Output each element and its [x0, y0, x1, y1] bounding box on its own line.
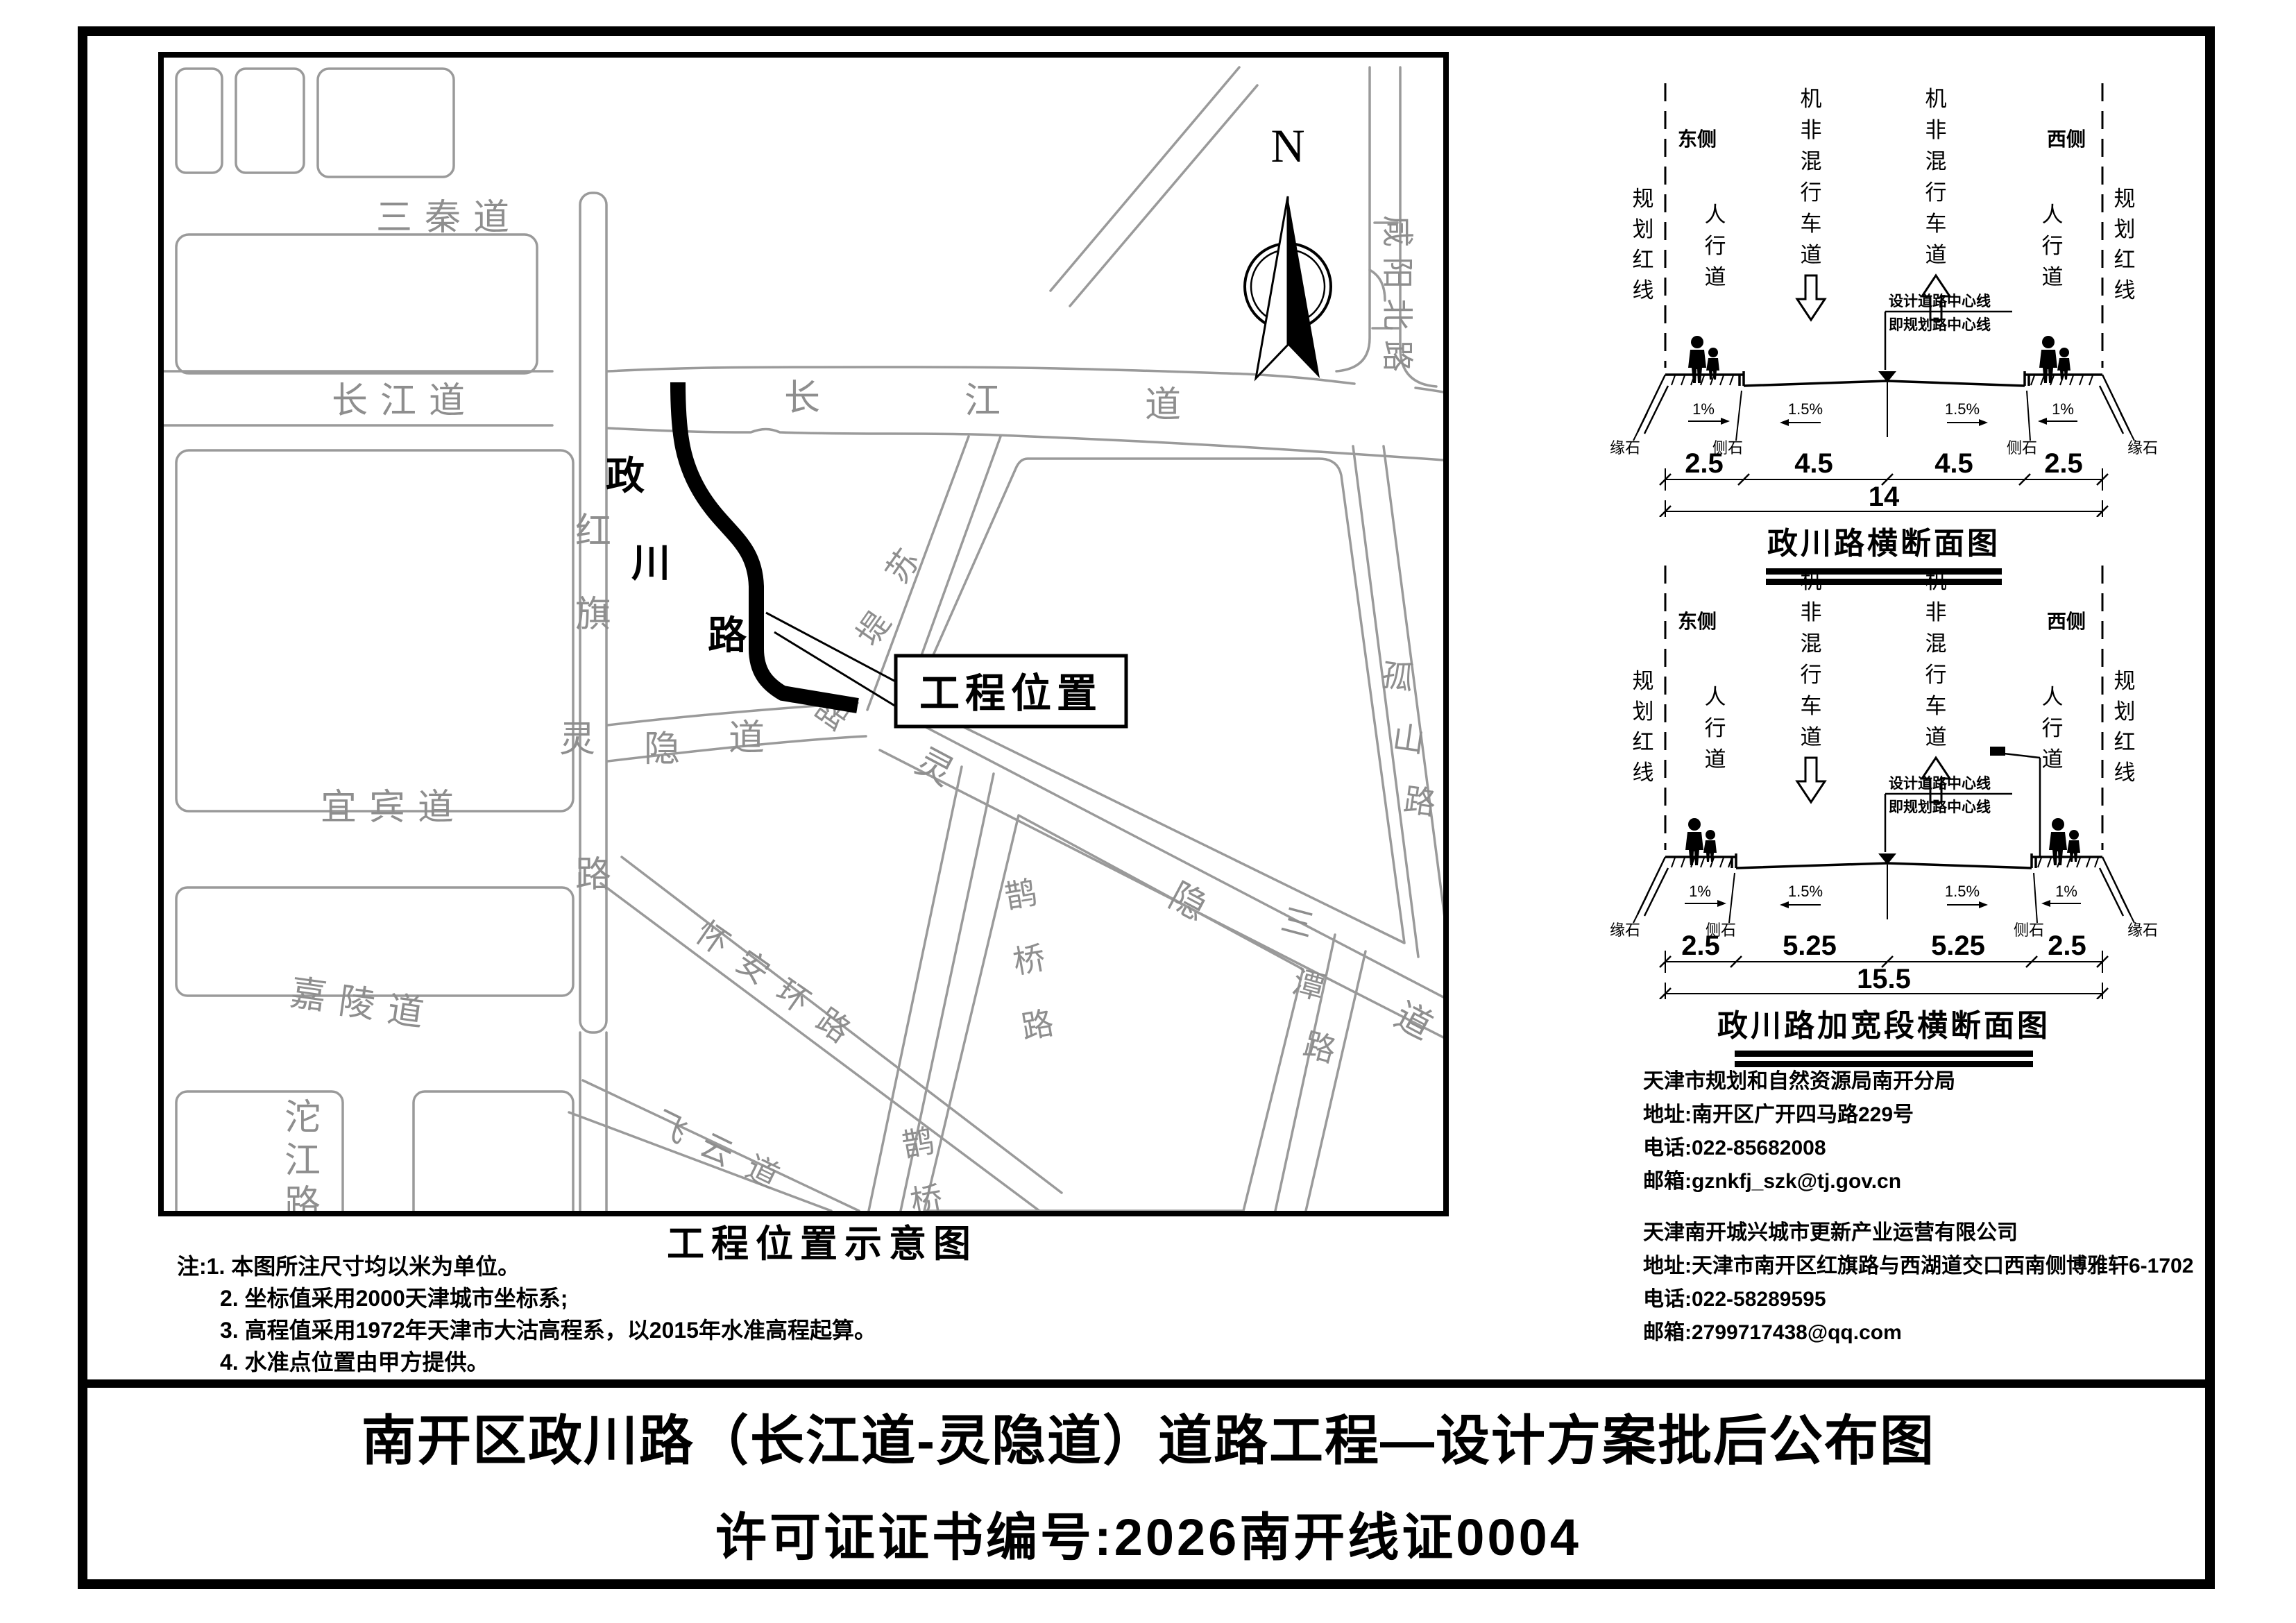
svg-text:道: 道	[385, 989, 427, 1035]
svg-text:道: 道	[1925, 725, 1947, 749]
svg-text:鹊: 鹊	[899, 1123, 937, 1164]
svg-text:车: 车	[1801, 212, 1822, 236]
street-label-gushanlu: 孤山路	[1379, 656, 1438, 822]
svg-text:2.5: 2.5	[2044, 448, 2083, 479]
svg-text:即规划路中心线: 即规划路中心线	[1889, 799, 1991, 815]
svg-text:隐: 隐	[644, 729, 680, 770]
svg-text:道: 道	[473, 198, 509, 238]
svg-text:规: 规	[2114, 187, 2136, 211]
street-network	[164, 67, 1443, 1211]
svg-text:江: 江	[964, 381, 1001, 421]
svg-text:苏: 苏	[878, 543, 926, 590]
side-label-west: 西侧	[2047, 128, 2086, 150]
street-label-huaianhuanlu: 怀安环路	[689, 914, 857, 1049]
svg-text:人: 人	[2042, 685, 2064, 709]
red-line-text-right: 规划红线	[2114, 187, 2136, 303]
note-line-3: 3. 高程值采用1972年天津市大沽高程系，以2015年水准高程起算。	[220, 1314, 876, 1346]
slope-labels: 1% 1% 1.5% 1.5%	[1685, 883, 2081, 908]
svg-text:道: 道	[1705, 265, 1726, 289]
svg-text:混: 混	[1801, 149, 1822, 173]
svg-text:北: 北	[1379, 298, 1415, 330]
svg-text:规: 规	[2114, 669, 2136, 693]
svg-text:车: 车	[1925, 694, 1947, 718]
note-prefix: 注:	[177, 1254, 207, 1279]
svg-text:道: 道	[429, 381, 465, 421]
down-arrow-icon	[1797, 275, 1825, 320]
svg-text:行: 行	[2042, 234, 2064, 258]
svg-text:1.5%: 1.5%	[1788, 400, 1823, 418]
street-lingyindao-east	[880, 714, 1443, 1037]
svg-text:道: 道	[1705, 747, 1726, 772]
svg-text:非: 非	[1801, 118, 1822, 142]
svg-text:灵: 灵	[559, 720, 595, 760]
svg-text:隐: 隐	[1162, 876, 1213, 928]
svg-text:15.5: 15.5	[1857, 964, 1911, 994]
lane-text-left: 机非混行车道	[1801, 87, 1822, 267]
svg-text:缘石: 缘石	[2127, 921, 2158, 939]
map-canvas: 三秦道 长江道 长江道 红旗路 苏堤路 灵隐道 灵隐道 宜宾道 嘉陵道 沱江路 …	[164, 58, 1443, 1211]
svg-text:缘石: 缘石	[1610, 921, 1640, 939]
street-label-lingyindao-east: 灵隐道	[909, 741, 1438, 1048]
svg-text:机: 机	[1925, 569, 1947, 593]
svg-text:缘石: 缘石	[1610, 439, 1640, 457]
svg-text:陵: 陵	[337, 981, 378, 1026]
svg-text:红: 红	[1633, 730, 1654, 754]
svg-text:设计道路中心线: 设计道路中心线	[1889, 293, 1991, 309]
svg-text:江: 江	[284, 1141, 321, 1181]
contact-org-2: 天津南开城兴城市更新产业运营有限公司	[1643, 1216, 2205, 1250]
contact-email-1: 邮箱:gznkfj_szk@tj.gov.cn	[1643, 1165, 2205, 1198]
svg-text:车: 车	[1925, 212, 1947, 236]
svg-text:道: 道	[1388, 995, 1438, 1048]
total-dimension: 15.5	[1660, 964, 2108, 999]
svg-text:侧石: 侧石	[2014, 921, 2044, 939]
total-dimension: 14	[1660, 482, 2108, 517]
svg-text:云: 云	[695, 1126, 739, 1173]
cross-section-title: 政川路加宽段横断面图	[1561, 1001, 2206, 1067]
contact-address-1: 地址:南开区广开四马路229号	[1643, 1098, 2205, 1132]
street-ne-diagonal	[1051, 67, 1257, 306]
svg-text:行: 行	[1801, 180, 1822, 205]
red-line-text-left: 规划红线	[1633, 669, 1654, 785]
svg-text:人: 人	[2042, 203, 2064, 227]
svg-text:道: 道	[2042, 265, 2064, 289]
lane-text-left: 机非混行车道	[1801, 569, 1822, 749]
svg-text:14: 14	[1869, 482, 1900, 512]
svg-text:人: 人	[1705, 203, 1726, 227]
svg-text:政: 政	[606, 454, 645, 498]
svg-text:道: 道	[2042, 747, 2064, 772]
svg-text:宜: 宜	[321, 788, 357, 828]
svg-text:4.5: 4.5	[1794, 448, 1833, 479]
svg-text:咸: 咸	[1379, 215, 1415, 247]
svg-text:缘石: 缘石	[2127, 439, 2158, 457]
svg-text:1.5%: 1.5%	[1945, 883, 1980, 900]
svg-text:机: 机	[1801, 569, 1822, 593]
svg-text:江: 江	[380, 381, 416, 421]
svg-text:行: 行	[1801, 663, 1822, 687]
sidewalk-text-left: 人行道	[1705, 685, 1726, 772]
svg-text:路: 路	[810, 1001, 857, 1049]
svg-text:嘉: 嘉	[288, 973, 330, 1018]
contact-info: 天津市规划和自然资源局南开分局 地址:南开区广开四马路229号 电话:022-8…	[1643, 1065, 2205, 1350]
svg-text:红: 红	[575, 511, 611, 552]
svg-text:山: 山	[1391, 719, 1427, 759]
svg-text:非: 非	[1801, 600, 1822, 624]
side-label-east: 东侧	[1678, 128, 1717, 150]
svg-text:行: 行	[1705, 234, 1726, 258]
side-label-east: 东侧	[1678, 610, 1717, 632]
svg-text:规: 规	[1633, 187, 1654, 211]
svg-text:即规划路中心线: 即规划路中心线	[1889, 316, 1991, 333]
red-line-text-left: 规划红线	[1633, 187, 1654, 303]
svg-text:道: 道	[418, 788, 454, 828]
slope-labels: 1% 1% 1.5% 1.5%	[1688, 400, 2077, 426]
svg-text:混: 混	[1801, 631, 1822, 656]
svg-text:桥: 桥	[908, 1180, 945, 1211]
note-line-2: 2. 坐标值采用2000天津城市坐标系;	[220, 1282, 876, 1314]
svg-text:非: 非	[1925, 118, 1947, 142]
svg-text:线: 线	[2114, 278, 2136, 303]
svg-text:长: 长	[332, 381, 368, 421]
sidewalk-text-right: 人行道	[2042, 685, 2064, 772]
note-line-4: 4. 水准点位置由甲方提供。	[220, 1346, 876, 1378]
svg-text:路: 路	[1300, 1026, 1340, 1069]
street-label-tuojianglu: 沱江路	[284, 1098, 321, 1211]
street-label-santanlu: 三潭路	[1277, 901, 1340, 1069]
street-label-queqiaolu-south: 鹊桥路	[899, 1123, 953, 1211]
svg-text:1%: 1%	[2052, 400, 2074, 418]
svg-text:路: 路	[575, 855, 611, 895]
street-label-queqiaolu-north: 鹊桥路	[1002, 874, 1056, 1046]
svg-text:行: 行	[1705, 716, 1726, 740]
svg-text:4.5: 4.5	[1934, 448, 1973, 479]
svg-text:环: 环	[769, 972, 817, 1020]
svg-text:机: 机	[1801, 87, 1822, 111]
street-label-changjiangdao-east: 长江道	[784, 378, 1181, 425]
red-line-text-right: 规划红线	[2114, 669, 2136, 785]
permit-number: 许可证证书编号:2026南开线证0004	[92, 1496, 2205, 1570]
svg-text:2.5: 2.5	[1685, 448, 1724, 479]
lane-text-right: 机非混行车道	[1925, 87, 1947, 267]
contact-phone-1: 电话:022-85682008	[1643, 1132, 2205, 1165]
project-road-label: 政川路	[606, 454, 747, 657]
svg-text:桥: 桥	[1010, 940, 1048, 980]
city-blocks	[176, 69, 1404, 1211]
svg-text:长: 长	[784, 378, 820, 418]
svg-text:路: 路	[1379, 340, 1415, 372]
svg-text:三: 三	[1277, 901, 1318, 944]
note-line-1: 注:1. 本图所注尺寸均以米为单位。	[177, 1250, 876, 1282]
street-label-jialingdao: 嘉陵道	[288, 973, 427, 1035]
svg-text:1%: 1%	[2055, 883, 2077, 900]
svg-text:宾: 宾	[369, 788, 405, 828]
svg-text:道: 道	[1801, 725, 1822, 749]
street-gushanlu	[1353, 446, 1443, 957]
svg-text:路: 路	[1402, 781, 1438, 822]
svg-text:道: 道	[1801, 243, 1822, 267]
sidewalk-text-right: 人行道	[2042, 203, 2064, 289]
cross-section-standard: 东侧 西侧 规划红线 规划红线 人行道 人行道 机非混行车道 机非混行车道 设计…	[1561, 59, 2206, 585]
notes-block: 注:1. 本图所注尺寸均以米为单位。 2. 坐标值采用2000天津城市坐标系; …	[177, 1250, 876, 1378]
side-label-west: 西侧	[2047, 611, 2086, 632]
sidewalk-text-left: 人行道	[1705, 203, 1726, 289]
svg-text:道: 道	[1925, 243, 1947, 267]
contact-address-2: 地址:天津市南开区红旗路与西湖道交口西南侧博雅轩6-1702	[1643, 1250, 2205, 1283]
svg-text:划: 划	[1633, 699, 1654, 724]
street-changjiangdao-south-east	[608, 428, 1443, 460]
page-title: 南开区政川路（长江道-灵隐道）道路工程—设计方案批后公布图	[92, 1397, 2205, 1475]
callout-label: 工程位置	[919, 671, 1103, 716]
pedestrian-icon	[2049, 818, 2080, 865]
svg-text:孤: 孤	[1379, 656, 1416, 697]
svg-text:侧石: 侧石	[2007, 439, 2037, 457]
street-lamp-icon	[1990, 747, 2040, 857]
svg-text:划: 划	[1633, 217, 1654, 241]
pedestrian-icon	[2039, 336, 2070, 383]
lane-text-right: 机非混行车道	[1925, 569, 1947, 749]
svg-text:设计道路中心线: 设计道路中心线	[1889, 775, 1991, 792]
svg-text:2.5: 2.5	[2048, 931, 2086, 961]
svg-text:1%: 1%	[1689, 883, 1711, 900]
svg-text:红: 红	[2114, 730, 2136, 754]
svg-text:沱: 沱	[284, 1098, 321, 1138]
street-label-lingyindao-west: 灵隐道	[559, 718, 765, 770]
svg-text:线: 线	[1633, 760, 1654, 785]
svg-text:行: 行	[1925, 663, 1947, 687]
down-arrow-icon	[1797, 758, 1825, 802]
svg-text:5.25: 5.25	[1783, 931, 1837, 961]
svg-text:路: 路	[708, 613, 747, 657]
svg-text:划: 划	[2114, 217, 2136, 241]
svg-text:旗: 旗	[575, 595, 611, 635]
svg-text:规: 规	[1633, 669, 1654, 693]
svg-text:红: 红	[2114, 248, 2136, 272]
svg-text:行: 行	[1925, 180, 1947, 205]
svg-text:1.5%: 1.5%	[1788, 883, 1823, 900]
svg-text:混: 混	[1925, 149, 1947, 173]
street-label-changjiangdao-west: 长江道	[332, 381, 465, 421]
svg-text:划: 划	[2114, 699, 2136, 724]
title-band-separator	[82, 1379, 2215, 1388]
svg-text:路: 路	[1019, 1005, 1056, 1046]
contact-org-1: 天津市规划和自然资源局南开分局	[1643, 1065, 2205, 1098]
svg-text:路: 路	[284, 1184, 321, 1211]
svg-text:混: 混	[1925, 631, 1947, 656]
svg-text:机: 机	[1925, 87, 1947, 111]
cross-section-widened: 东侧 西侧 规划红线 规划红线 人行道 人行道 机非混行车道 机非混行车道 设计…	[1561, 541, 2206, 1067]
svg-text:1%: 1%	[1692, 400, 1715, 418]
pedestrian-icon	[1685, 818, 1717, 865]
svg-text:线: 线	[2114, 760, 2136, 785]
north-compass-icon: N	[1245, 119, 1331, 378]
svg-text:车: 车	[1801, 694, 1822, 718]
svg-text:1.5%: 1.5%	[1945, 400, 1980, 418]
svg-text:川: 川	[631, 541, 670, 585]
svg-text:道: 道	[1145, 385, 1181, 425]
svg-text:道: 道	[740, 1148, 785, 1195]
street-label-sanqindao: 三秦道	[376, 198, 509, 238]
title-band: 南开区政川路（长江道-灵隐道）道路工程—设计方案批后公布图 许可证证书编号:20…	[92, 1397, 2205, 1570]
svg-text:阳: 阳	[1379, 257, 1415, 289]
svg-text:线: 线	[1633, 278, 1654, 303]
svg-text:秦: 秦	[425, 198, 461, 238]
title-underline	[1735, 1051, 2033, 1057]
location-map: 三秦道 长江道 长江道 红旗路 苏堤路 灵隐道 灵隐道 宜宾道 嘉陵道 沱江路 …	[158, 52, 1449, 1216]
svg-text:行: 行	[2042, 716, 2064, 740]
north-arrow-icon	[1288, 196, 1320, 378]
svg-text:道: 道	[729, 718, 765, 758]
street-label-yibindao: 宜宾道	[321, 788, 454, 828]
svg-text:5.25: 5.25	[1931, 931, 1985, 961]
svg-text:人: 人	[1705, 685, 1726, 709]
contact-phone-2: 电话:022-58289595	[1643, 1283, 2205, 1316]
svg-text:2.5: 2.5	[1681, 931, 1720, 961]
svg-text:非: 非	[1925, 600, 1947, 624]
north-letter: N	[1270, 119, 1304, 172]
svg-text:三: 三	[376, 198, 412, 238]
contact-email-2: 邮箱:2799717438@qq.com	[1643, 1316, 2205, 1350]
drawing-sheet: { "doc": { "title_line1": "南开区政川路（长江道-灵隐…	[0, 0, 2296, 1623]
svg-text:鹊: 鹊	[1002, 874, 1039, 915]
svg-text:红: 红	[1633, 248, 1654, 272]
